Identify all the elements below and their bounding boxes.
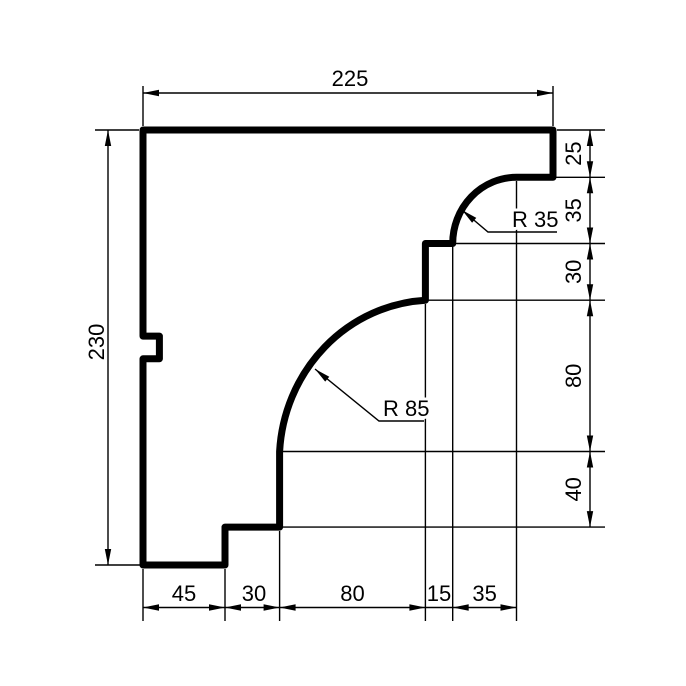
arrowhead-bottom-x155-right: [409, 604, 425, 610]
dim-label-width-225: 225: [332, 66, 369, 91]
arrowhead-right-y25-up: [587, 177, 593, 193]
dim-label-right-25: 25: [561, 141, 586, 165]
dim-label-right-35: 35: [561, 198, 586, 222]
dim-label-bottom-35: 35: [472, 581, 496, 606]
cornice-profile-drawing: 225 230 25 35 30 80 40 45 30 80 15 35 R …: [0, 0, 686, 686]
radius-label-r35: R 35: [512, 207, 558, 232]
arrowhead-left-up: [105, 130, 111, 146]
arrowhead-right-y25-down: [587, 161, 593, 177]
arrowhead-bottom-x45-left: [225, 604, 241, 610]
extension-lines: [95, 86, 605, 621]
drawing-canvas: 225 230 25 35 30 80 40 45 30 80 15 35 R …: [0, 0, 686, 686]
dimension-lines: [108, 93, 590, 608]
profile-outline: [143, 130, 553, 565]
arrowhead-right-y0-up: [587, 130, 593, 146]
arrowhead-top-left: [143, 90, 159, 96]
dim-label-bottom-45: 45: [172, 581, 196, 606]
arrowhead-bottom-x75-left: [280, 604, 296, 610]
dim-label-bottom-15: 15: [427, 581, 451, 606]
arrowhead-bottom-x170-left: [453, 604, 469, 610]
arrowhead-right-y90-up: [587, 300, 593, 316]
arrowhead-right-y90-down: [587, 284, 593, 300]
arrowhead-right-y60-down: [587, 228, 593, 244]
arrowhead-top-right: [537, 90, 553, 96]
arrowhead-bottom-x45-right: [209, 604, 225, 610]
arrowhead-right-y210-down: [587, 511, 593, 527]
arrowheads: [105, 90, 593, 611]
arrowhead-right-y170-up: [587, 452, 593, 468]
dim-label-height-230: 230: [84, 324, 109, 361]
dim-label-bottom-80: 80: [340, 581, 364, 606]
dim-label-bottom-30: 30: [242, 581, 266, 606]
dim-label-right-40: 40: [561, 477, 586, 501]
arrowhead-bottom-x205-right: [501, 604, 517, 610]
arrowhead-left-down: [105, 549, 111, 565]
dim-label-right-80: 80: [561, 364, 586, 388]
arrowhead-bottom-x0-left: [143, 604, 159, 610]
radius-label-r85: R 85: [383, 396, 429, 421]
arrowhead-right-y60-up: [587, 244, 593, 260]
arrowhead-right-y170-down: [587, 436, 593, 452]
dim-label-right-30: 30: [561, 260, 586, 284]
